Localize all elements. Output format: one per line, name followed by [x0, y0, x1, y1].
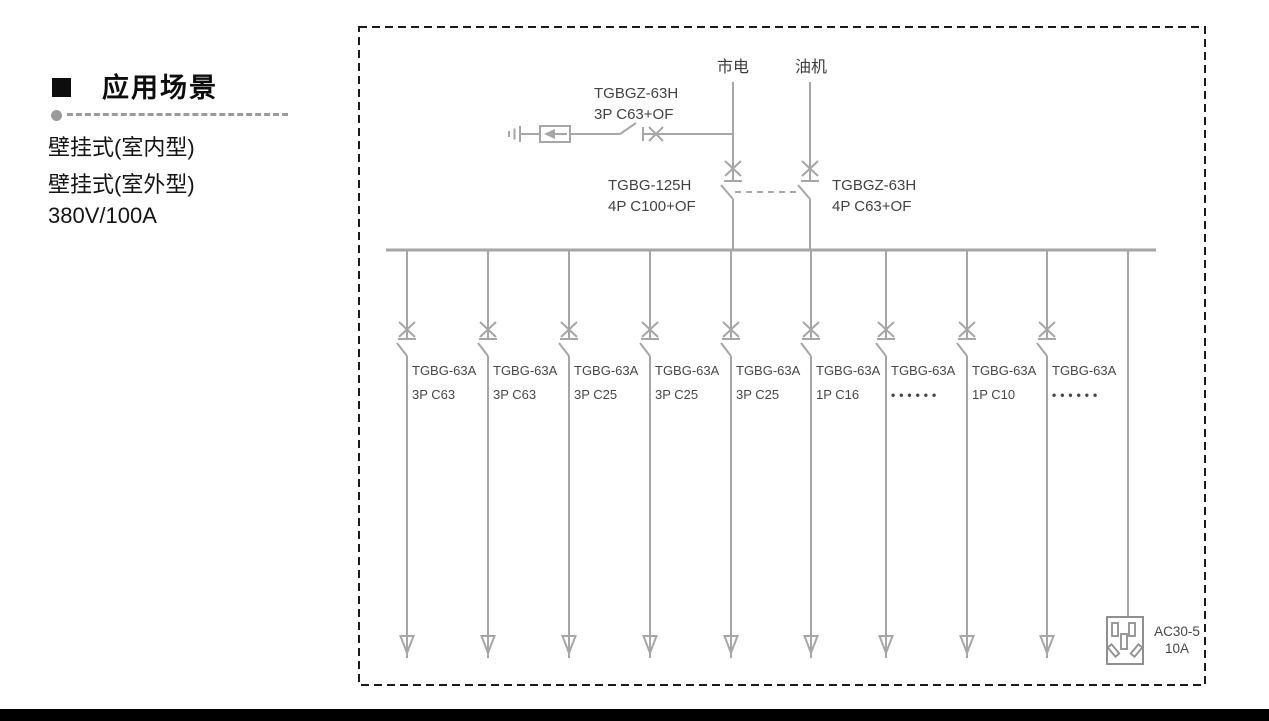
branch-breaker [1037, 250, 1056, 658]
branch-label: TGBG-63A 3P C25 [736, 359, 800, 407]
breaker-spec: 3P C63 [412, 383, 476, 407]
breaker-spec: 3P C25 [574, 383, 638, 407]
branch-breaker [876, 250, 895, 658]
spd-arrow-icon [544, 129, 555, 139]
breaker-model: TGBG-63A [1052, 359, 1116, 383]
breaker-model: TGBG-63A [736, 359, 800, 383]
socket-label: AC30-5 10A [1148, 623, 1206, 657]
breaker-spec: 3P C63 [493, 383, 557, 407]
branch-breaker [957, 250, 976, 658]
branch-label: TGBG-63A 3P C63 [412, 359, 476, 407]
breaker-model: TGBGZ-63H [832, 175, 916, 196]
page: 应用场景 壁挂式(室内型) 壁挂式(室外型) 380V/100A [0, 0, 1269, 721]
socket-rating: 10A [1148, 640, 1206, 657]
mains-incomer-breaker [721, 82, 742, 251]
branch-breaker [559, 250, 578, 658]
branch-breaker [478, 250, 497, 658]
breaker-spec: •••••• [1052, 383, 1116, 407]
branch-label: TGBG-63A •••••• [891, 359, 955, 407]
breaker-model: TGBG-63A [574, 359, 638, 383]
branch-breaker [801, 250, 820, 658]
branch-breaker [721, 250, 740, 658]
breaker-model: TGBG-125H [608, 175, 696, 196]
breaker-model: TGBG-63A [412, 359, 476, 383]
branch-label: TGBG-63A 3P C25 [655, 359, 719, 407]
socket-model: AC30-5 [1148, 623, 1206, 640]
mains-breaker-label: TGBG-125H 4P C100+OF [608, 175, 696, 217]
breaker-spec: •••••• [891, 383, 955, 407]
spd-branch [509, 123, 733, 142]
diagram-dashed-border [359, 27, 1205, 685]
branch-breaker [397, 250, 416, 658]
branch-breaker [640, 250, 659, 658]
breaker-model: TGBG-63A [655, 359, 719, 383]
mains-source-label: 市电 [711, 57, 755, 78]
branch-label: TGBG-63A 3P C25 [574, 359, 638, 407]
generator-source-label: 油机 [789, 57, 833, 78]
branch-label: TGBG-63A 1P C16 [816, 359, 880, 407]
generator-breaker-label: TGBGZ-63H 4P C63+OF [832, 175, 916, 217]
breaker-spec: 1P C10 [972, 383, 1036, 407]
bottom-rule [0, 709, 1269, 721]
branch-label: TGBG-63A 3P C63 [493, 359, 557, 407]
branch-label: TGBG-63A 1P C10 [972, 359, 1036, 407]
breaker-spec: 3P C63+OF [594, 104, 678, 125]
branch-label: TGBG-63A •••••• [1052, 359, 1116, 407]
generator-incomer-breaker [798, 82, 819, 251]
breaker-model: TGBG-63A [972, 359, 1036, 383]
breaker-spec: 4P C63+OF [832, 196, 916, 217]
spd-breaker-label: TGBGZ-63H 3P C63+OF [594, 83, 678, 125]
breaker-spec: 3P C25 [736, 383, 800, 407]
breaker-spec: 4P C100+OF [608, 196, 696, 217]
breaker-model: TGBG-63A [816, 359, 880, 383]
breaker-model: TGBG-63A [891, 359, 955, 383]
breaker-spec: 3P C25 [655, 383, 719, 407]
breaker-model: TGBG-63A [493, 359, 557, 383]
socket-icon [1107, 617, 1143, 664]
breaker-model: TGBGZ-63H [594, 83, 678, 104]
breaker-spec: 1P C16 [816, 383, 880, 407]
